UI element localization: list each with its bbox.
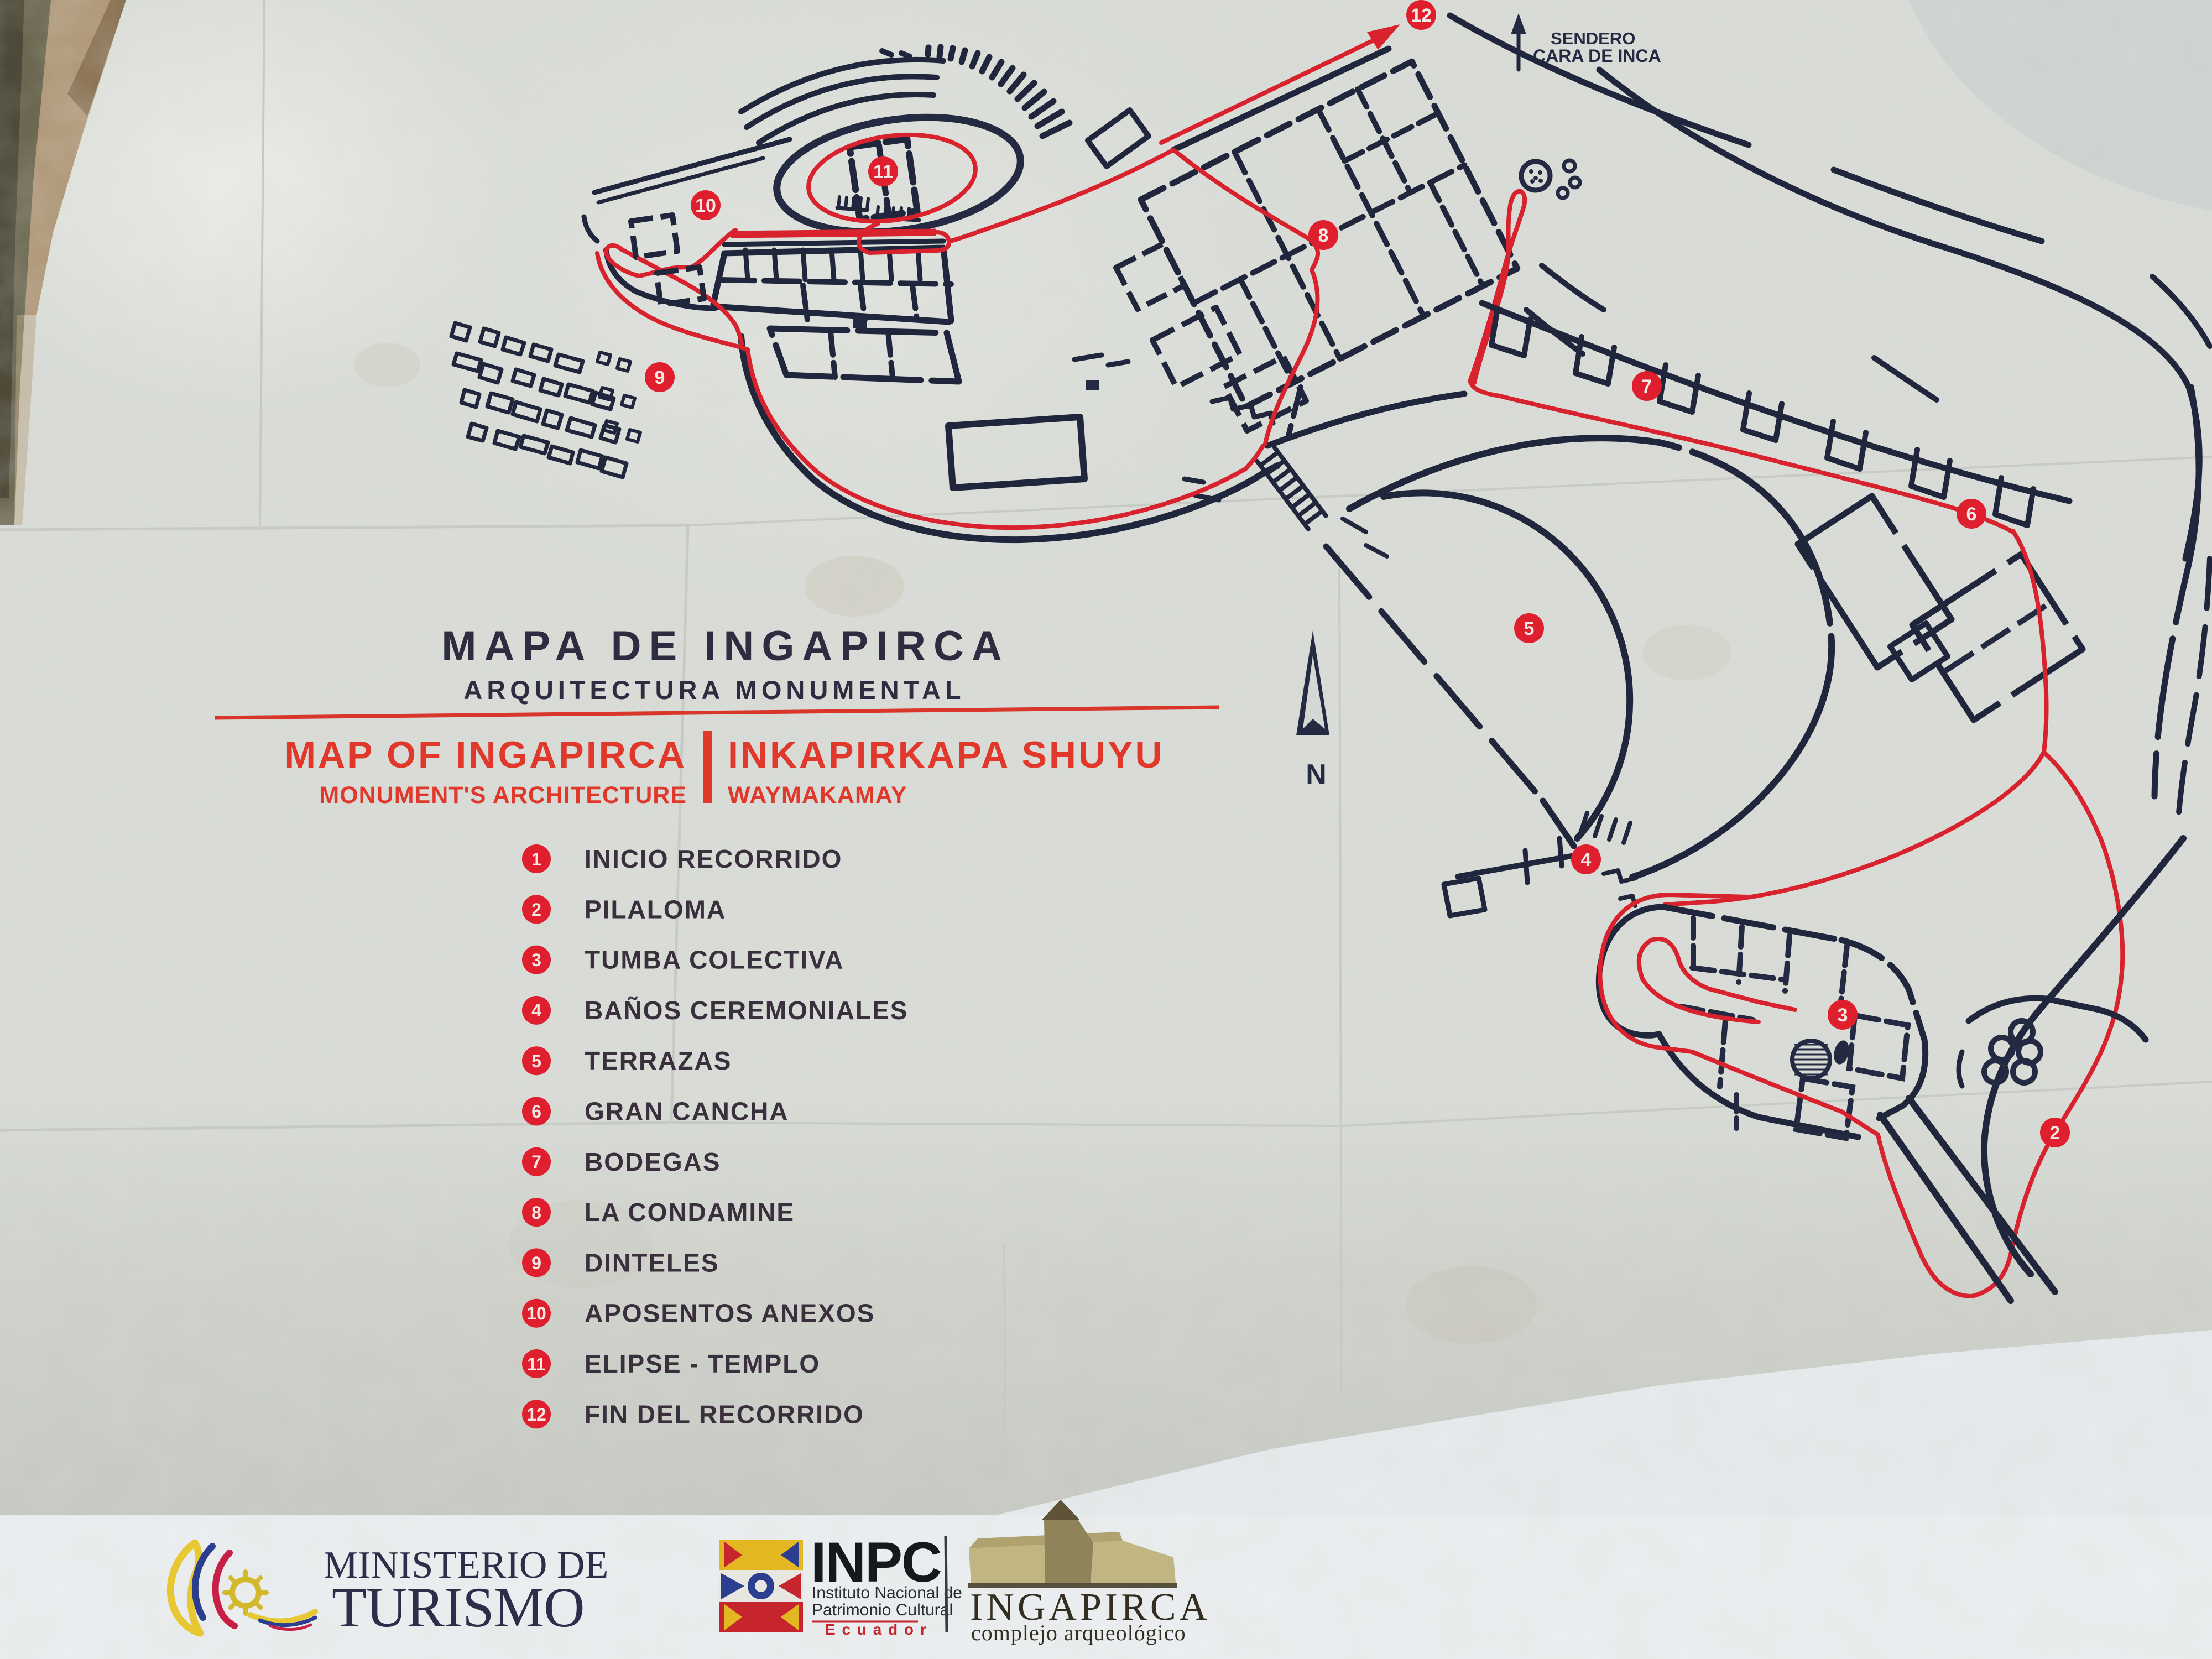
svg-text:8: 8 <box>1318 225 1329 246</box>
svg-text:PILALOMA: PILALOMA <box>585 895 726 924</box>
svg-text:10: 10 <box>695 195 716 216</box>
svg-text:LA CONDAMINE: LA CONDAMINE <box>585 1198 795 1227</box>
svg-text:5: 5 <box>531 1051 541 1071</box>
svg-text:12: 12 <box>526 1405 546 1425</box>
svg-text:MAPA DE INGAPIRCA: MAPA DE INGAPIRCA <box>441 623 1010 670</box>
svg-text:10: 10 <box>526 1303 546 1323</box>
svg-text:5: 5 <box>1524 618 1535 639</box>
svg-text:TURISMO: TURISMO <box>332 1576 585 1639</box>
svg-text:1: 1 <box>531 849 541 869</box>
svg-text:7: 7 <box>1642 376 1652 397</box>
svg-text:ELIPSE - TEMPLO: ELIPSE - TEMPLO <box>585 1349 820 1378</box>
svg-text:8: 8 <box>531 1203 541 1223</box>
svg-text:INKAPIRKAPA SHUYU: INKAPIRKAPA SHUYU <box>728 734 1165 776</box>
svg-text:FIN DEL RECORRIDO: FIN DEL RECORRIDO <box>585 1400 864 1428</box>
svg-text:12: 12 <box>1411 5 1432 26</box>
svg-text:CARA DE INCA: CARA DE INCA <box>1533 46 1661 66</box>
svg-text:9: 9 <box>655 367 665 388</box>
svg-text:6: 6 <box>531 1102 541 1121</box>
svg-text:4: 4 <box>531 1000 541 1020</box>
svg-text:GRAN CANCHA: GRAN CANCHA <box>585 1097 789 1126</box>
svg-text:BAÑOS CEREMONIALES: BAÑOS CEREMONIALES <box>585 996 908 1025</box>
svg-text:3: 3 <box>531 950 541 970</box>
svg-text:7: 7 <box>531 1152 541 1172</box>
svg-text:SENDERO: SENDERO <box>1551 29 1635 48</box>
svg-text:BODEGAS: BODEGAS <box>585 1147 721 1176</box>
svg-text:11: 11 <box>873 161 893 182</box>
svg-text:ARQUITECTURA MONUMENTAL: ARQUITECTURA MONUMENTAL <box>463 675 965 705</box>
svg-text:Instituto Nacional de: Instituto Nacional de <box>812 1584 962 1602</box>
svg-text:E c u a d o r: E c u a d o r <box>825 1621 927 1638</box>
svg-text:4: 4 <box>1581 849 1592 870</box>
svg-text:INICIO RECORRIDO: INICIO RECORRIDO <box>585 844 842 873</box>
svg-text:2: 2 <box>2050 1123 2060 1144</box>
svg-text:MONUMENT'S ARCHITECTURE: MONUMENT'S ARCHITECTURE <box>319 782 687 808</box>
svg-text:11: 11 <box>527 1354 546 1374</box>
svg-text:N: N <box>1306 759 1327 791</box>
svg-text:WAYMAKAMAY: WAYMAKAMAY <box>728 782 907 808</box>
svg-text:DINTELES: DINTELES <box>585 1248 719 1277</box>
svg-text:6: 6 <box>1966 504 1977 525</box>
svg-text:2: 2 <box>531 900 541 920</box>
svg-text:TUMBA COLECTIVA: TUMBA COLECTIVA <box>585 946 844 974</box>
svg-text:complejo arqueológico: complejo arqueológico <box>971 1620 1186 1645</box>
svg-text:APOSENTOS ANEXOS: APOSENTOS ANEXOS <box>585 1299 875 1328</box>
svg-text:Patrimonio Cultural: Patrimonio Cultural <box>812 1601 953 1619</box>
svg-text:MAP OF INGAPIRCA: MAP OF INGAPIRCA <box>284 734 687 776</box>
svg-text:TERRAZAS: TERRAZAS <box>585 1046 732 1075</box>
svg-text:3: 3 <box>1838 1005 1848 1026</box>
svg-text:9: 9 <box>531 1253 541 1273</box>
